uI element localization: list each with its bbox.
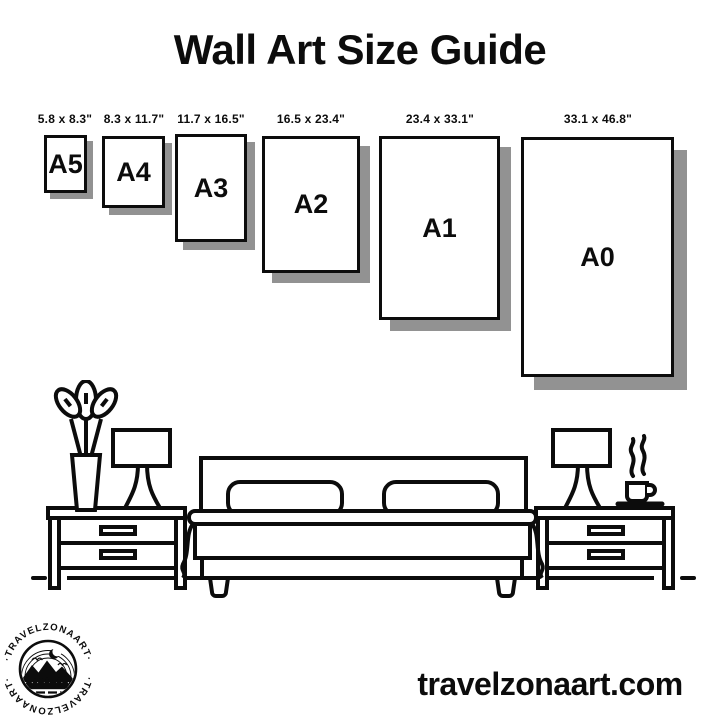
bedroom-illustration bbox=[0, 380, 720, 610]
frame-size-letter: A5 bbox=[48, 149, 83, 180]
frame-size-letter: A2 bbox=[294, 189, 329, 220]
frame-size-letter: A0 bbox=[580, 242, 615, 273]
website-text: travelzonaart.com bbox=[400, 666, 700, 703]
wall-art-size-guide-poster: Wall Art Size Guide 5.8 x 8.3" 8.3 x 11.… bbox=[0, 0, 720, 720]
page-title: Wall Art Size Guide bbox=[0, 26, 720, 74]
frame-size-letter: A1 bbox=[422, 213, 457, 244]
frame-size-letter: A3 bbox=[194, 173, 229, 204]
frame-a1: A1 bbox=[379, 136, 500, 320]
plant-icon bbox=[51, 381, 121, 510]
dim-label-a0: 33.1 x 46.8" bbox=[528, 112, 668, 126]
frame-a4: A4 bbox=[102, 136, 165, 208]
steam-icon bbox=[631, 436, 645, 476]
dim-label-a2: 16.5 x 23.4" bbox=[241, 112, 381, 126]
frame-a0: A0 bbox=[521, 137, 674, 377]
frame-size-letter: A4 bbox=[116, 157, 151, 188]
coffee-cup-icon bbox=[618, 436, 662, 504]
frame-a2: A2 bbox=[262, 136, 360, 273]
travelzonaart-logo: ·TRAVELZONAART· ·TRAVELZONAART· bbox=[2, 620, 94, 718]
table-lamp-left-icon bbox=[113, 430, 170, 508]
frame-a5: A5 bbox=[44, 135, 87, 193]
frame-a3: A3 bbox=[175, 134, 247, 242]
dim-label-a1: 23.4 x 33.1" bbox=[370, 112, 510, 126]
table-lamp-right-icon bbox=[553, 430, 610, 508]
bed-icon bbox=[182, 458, 543, 596]
